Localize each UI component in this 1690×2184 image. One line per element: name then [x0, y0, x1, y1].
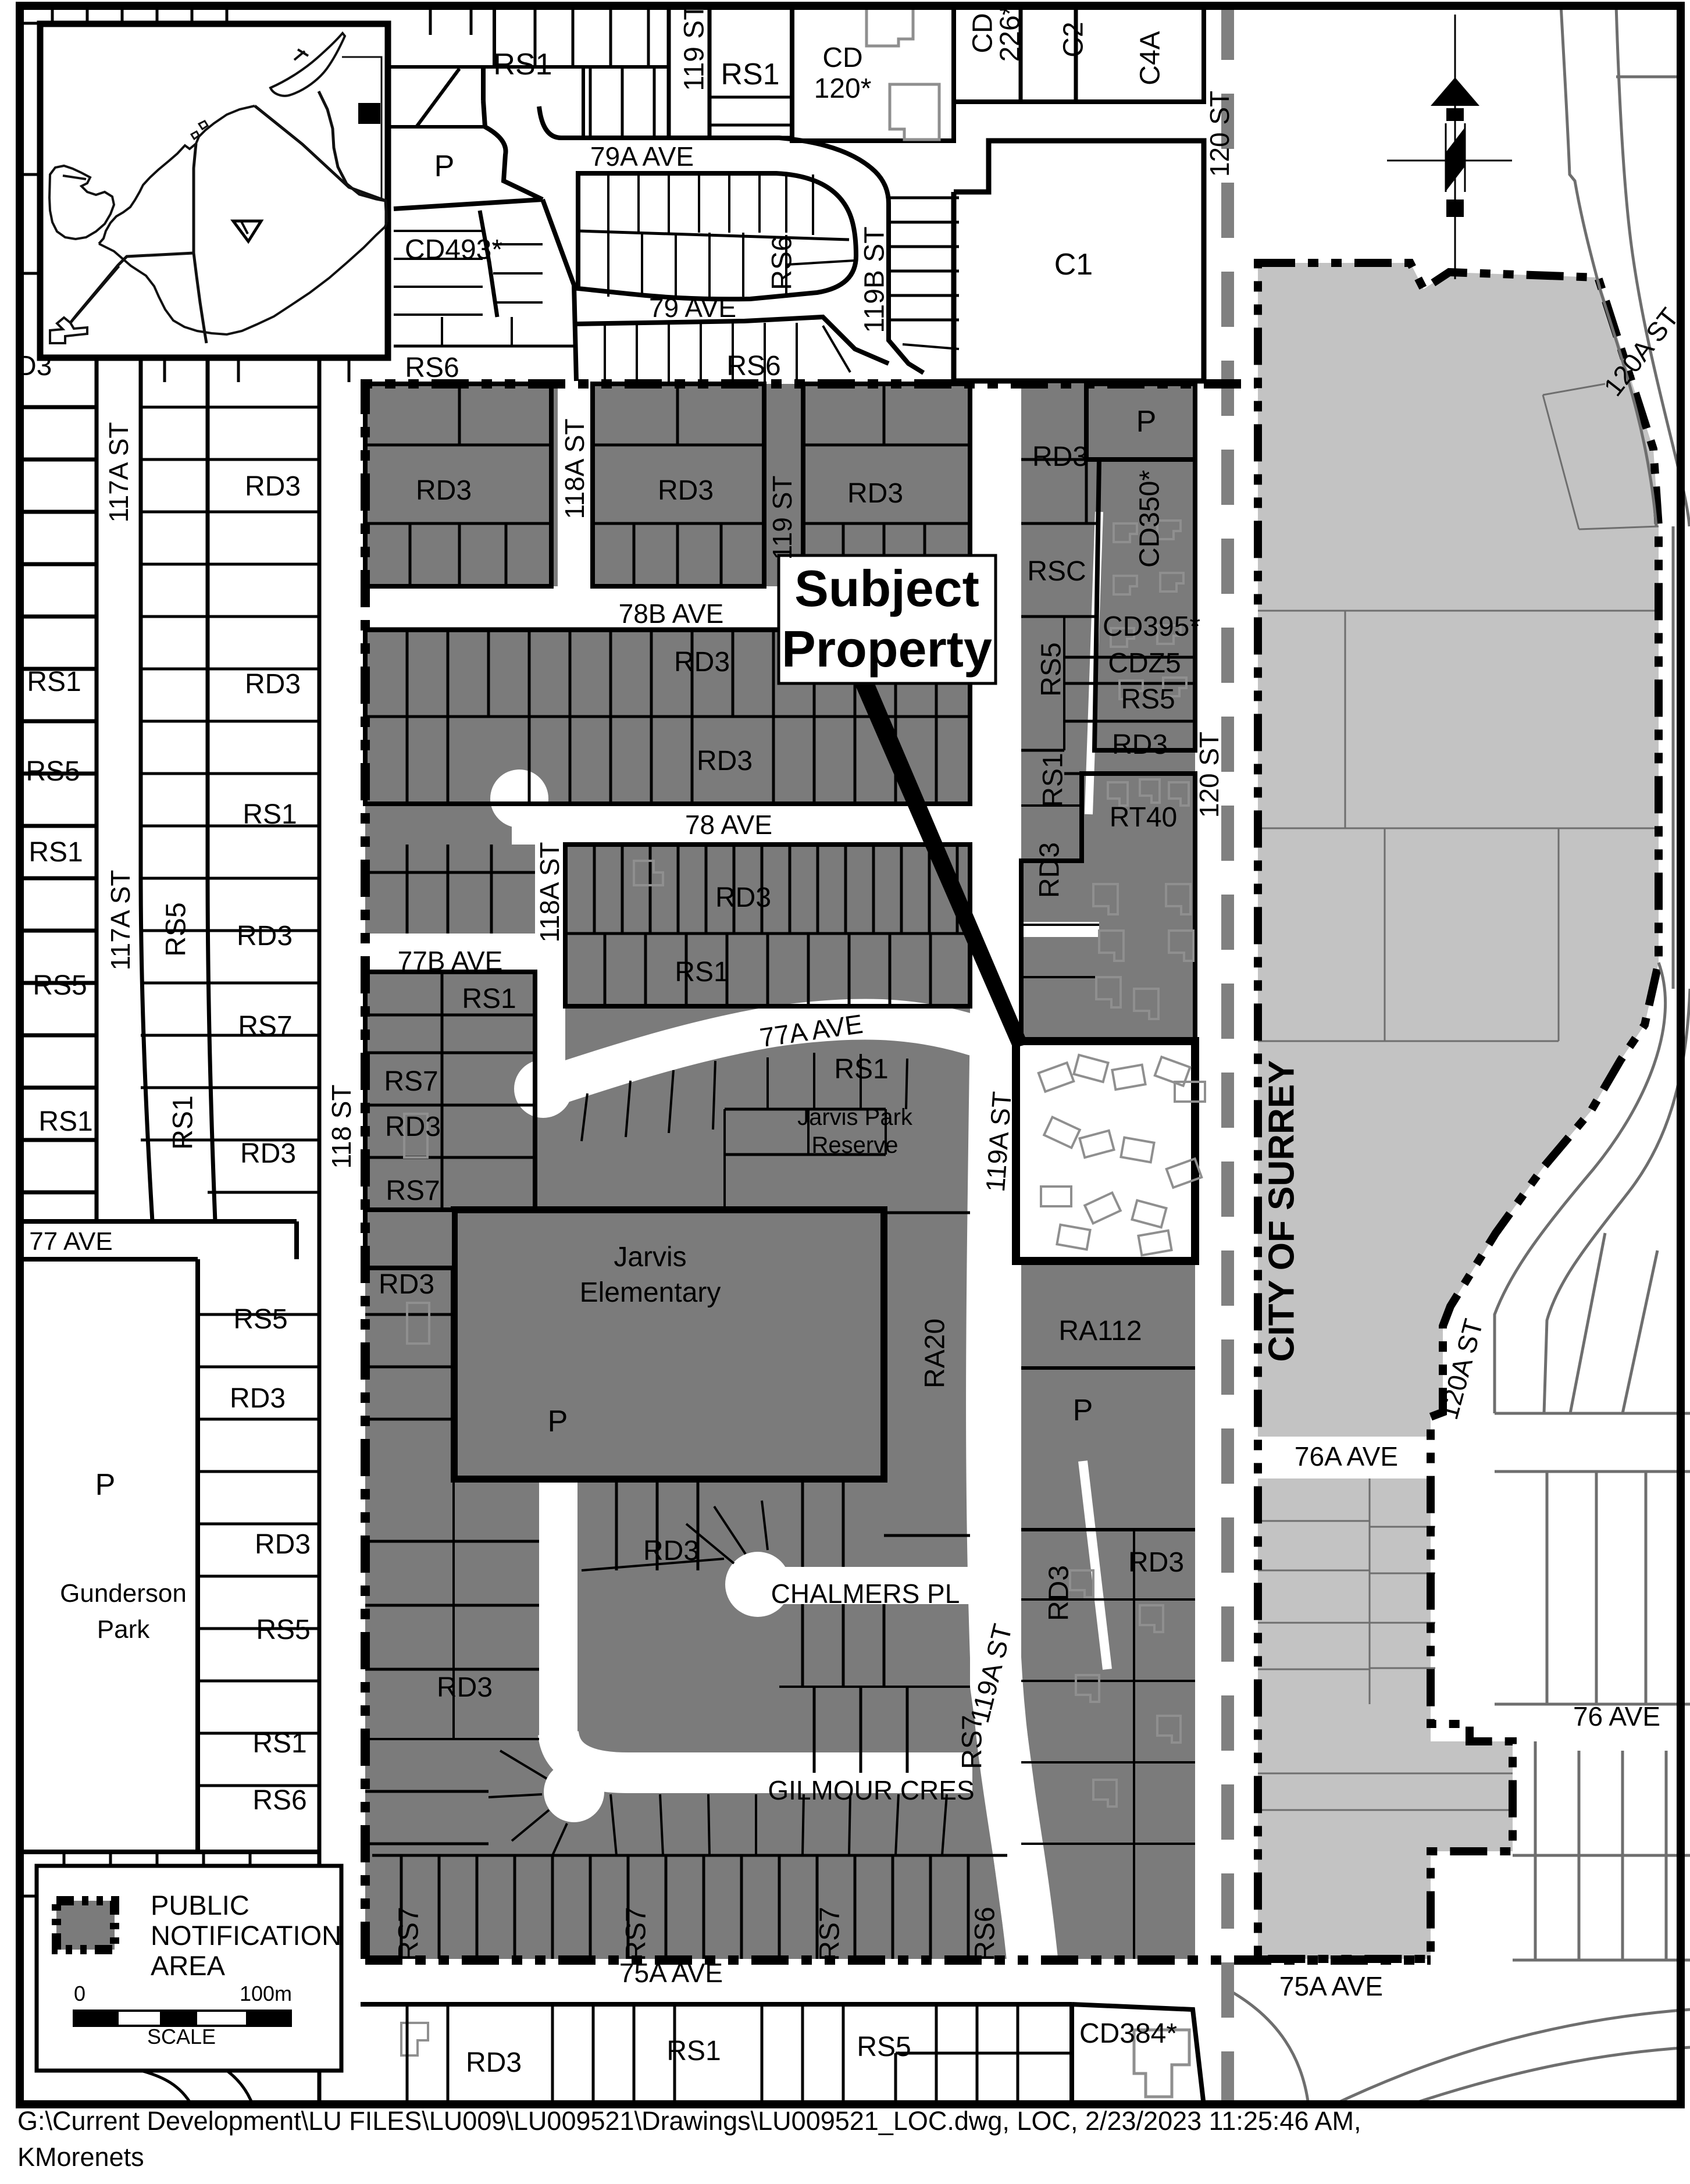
svg-text:118A ST: 118A ST [534, 842, 565, 942]
svg-text:RS7: RS7 [621, 1907, 652, 1961]
svg-text:117A ST: 117A ST [105, 870, 136, 970]
svg-text:RD3: RD3 [1035, 842, 1065, 898]
svg-text:Gunderson: Gunderson [60, 1579, 187, 1608]
svg-text:CITY OF SURREY: CITY OF SURREY [1262, 1060, 1302, 1362]
svg-text:RD3: RD3 [643, 1535, 699, 1566]
svg-text:CD: CD [968, 13, 999, 53]
svg-text:78B AVE: 78B AVE [619, 598, 724, 629]
svg-text:RS1: RS1 [834, 1054, 888, 1085]
svg-text:77B AVE: 77B AVE [398, 946, 503, 976]
svg-text:100m: 100m [240, 1982, 292, 2005]
svg-text:CHALMERS PL: CHALMERS PL [771, 1579, 960, 1609]
svg-text:RSC: RSC [1027, 556, 1086, 587]
svg-text:76A AVE: 76A AVE [1295, 1441, 1398, 1472]
svg-text:RS7: RS7 [386, 1175, 440, 1206]
svg-text:RS6: RS6 [726, 351, 780, 382]
svg-text:120 ST: 120 ST [1194, 732, 1224, 818]
svg-text:RS6: RS6 [767, 236, 798, 290]
svg-text:118 ST: 118 ST [326, 1085, 356, 1169]
svg-text:P: P [434, 149, 455, 183]
svg-text:NOTIFICATION: NOTIFICATION [151, 1920, 341, 1951]
svg-text:RD3: RD3 [230, 1383, 286, 1414]
svg-text:Elementary: Elementary [580, 1277, 721, 1308]
svg-text:120 ST: 120 ST [1204, 91, 1235, 177]
svg-text:RS5: RS5 [161, 902, 192, 956]
svg-text:CDZ5: CDZ5 [1108, 648, 1181, 679]
svg-text:RD3: RD3 [466, 2047, 522, 2078]
svg-text:118A ST: 118A ST [559, 418, 590, 519]
svg-text:RD3: RD3 [245, 471, 301, 502]
svg-text:RD3: RD3 [847, 478, 903, 509]
svg-text:D3: D3 [16, 351, 52, 382]
svg-text:RD3: RD3 [240, 1138, 296, 1169]
svg-text:PUBLIC: PUBLIC [151, 1890, 249, 1921]
svg-text:RD3: RD3 [416, 475, 472, 506]
svg-text:CD350*: CD350* [1135, 470, 1165, 568]
svg-text:75A AVE: 75A AVE [619, 1958, 723, 1988]
svg-text:P: P [548, 1405, 568, 1438]
svg-text:RS1: RS1 [1038, 753, 1069, 807]
svg-text:RS5: RS5 [1036, 642, 1067, 696]
svg-text:117A ST: 117A ST [104, 422, 134, 522]
svg-text:RD3: RD3 [245, 669, 301, 700]
svg-text:RS7: RS7 [815, 1907, 846, 1961]
svg-text:C1: C1 [1054, 248, 1093, 282]
svg-text:Park: Park [97, 1615, 150, 1644]
svg-text:RS1: RS1 [493, 48, 552, 81]
svg-text:Jarvis Park: Jarvis Park [797, 1105, 913, 1130]
svg-text:RS7: RS7 [384, 1066, 438, 1097]
svg-text:RS1: RS1 [462, 984, 516, 1014]
svg-text:RD3: RD3 [715, 882, 771, 913]
svg-text:76 AVE: 76 AVE [1573, 1701, 1660, 1731]
svg-text:CD493*: CD493* [405, 234, 502, 265]
svg-text:RD3: RD3 [1112, 729, 1168, 760]
svg-text:G:\Current Development\LU FILE: G:\Current Development\LU FILES\LU009\LU… [17, 2106, 1361, 2136]
svg-text:75A AVE: 75A AVE [1279, 1971, 1383, 2001]
svg-text:0: 0 [74, 1982, 85, 2005]
svg-text:RS5: RS5 [26, 756, 80, 787]
svg-text:RD3: RD3 [658, 475, 714, 506]
svg-text:79 AVE: 79 AVE [649, 293, 736, 323]
svg-text:RS1: RS1 [27, 667, 81, 697]
svg-text:P: P [1136, 405, 1157, 439]
svg-text:RS6: RS6 [252, 1785, 306, 1816]
svg-text:RS1: RS1 [721, 58, 779, 91]
svg-text:RD3: RD3 [437, 1672, 493, 1703]
svg-text:RD3: RD3 [1044, 1565, 1075, 1621]
svg-text:RD3: RD3 [1032, 441, 1088, 472]
svg-text:C4A: C4A [1135, 31, 1166, 85]
svg-text:Jarvis: Jarvis [614, 1242, 686, 1273]
svg-text:P: P [95, 1468, 116, 1502]
svg-text:RD3: RD3 [237, 921, 293, 952]
svg-text:Property: Property [782, 620, 992, 678]
svg-text:Reserve: Reserve [812, 1132, 899, 1158]
svg-text:RS5: RS5 [1121, 684, 1175, 715]
svg-text:SCALE: SCALE [147, 2025, 216, 2048]
svg-text:RS1: RS1 [675, 957, 729, 988]
svg-text:RS6: RS6 [405, 352, 459, 383]
svg-text:RD3: RD3 [1128, 1547, 1184, 1578]
svg-text:C2: C2 [1058, 22, 1089, 57]
svg-text:RS1: RS1 [243, 799, 297, 830]
svg-text:RD3: RD3 [255, 1529, 311, 1560]
svg-text:RS1: RS1 [168, 1095, 199, 1149]
svg-text:CD384*: CD384* [1079, 2018, 1177, 2049]
svg-text:RD3: RD3 [385, 1111, 441, 1142]
svg-text:78 AVE: 78 AVE [685, 810, 772, 840]
svg-text:RA112: RA112 [1058, 1316, 1142, 1346]
svg-text:120*: 120* [814, 73, 872, 104]
svg-text:RS5: RS5 [33, 970, 87, 1001]
svg-text:RD3: RD3 [674, 647, 730, 678]
svg-text:RS1: RS1 [252, 1728, 306, 1759]
svg-text:RS5: RS5 [233, 1304, 287, 1335]
svg-text:119B ST: 119B ST [860, 226, 890, 333]
svg-text:AREA: AREA [151, 1950, 226, 1981]
svg-text:RS7: RS7 [394, 1907, 425, 1961]
svg-text:77 AVE: 77 AVE [29, 1227, 113, 1256]
svg-text:RS1: RS1 [28, 837, 83, 868]
svg-text:RS1: RS1 [38, 1106, 92, 1137]
svg-text:RS5: RS5 [857, 2032, 911, 2062]
svg-text:RS1: RS1 [666, 2036, 721, 2067]
svg-text:119 ST: 119 ST [679, 3, 710, 91]
svg-text:RA20: RA20 [920, 1319, 951, 1388]
svg-text:KMorenets: KMorenets [17, 2142, 144, 2172]
svg-text:Subject: Subject [794, 560, 979, 617]
svg-text:CD: CD [822, 42, 862, 73]
svg-text:RS6: RS6 [970, 1907, 1001, 1961]
svg-text:P: P [1073, 1394, 1093, 1427]
svg-text:RD3: RD3 [379, 1269, 434, 1300]
svg-text:RD3: RD3 [697, 746, 753, 776]
svg-text:CD395*: CD395* [1103, 611, 1200, 642]
svg-text:RS5: RS5 [256, 1615, 310, 1645]
svg-text:RT40: RT40 [1110, 802, 1178, 833]
svg-text:GILMOUR CRES: GILMOUR CRES [768, 1775, 974, 1805]
svg-text:79A AVE: 79A AVE [590, 141, 694, 172]
svg-text:RS7: RS7 [238, 1011, 292, 1042]
svg-text:226*: 226* [995, 5, 1026, 62]
svg-text:119 ST: 119 ST [767, 476, 797, 560]
